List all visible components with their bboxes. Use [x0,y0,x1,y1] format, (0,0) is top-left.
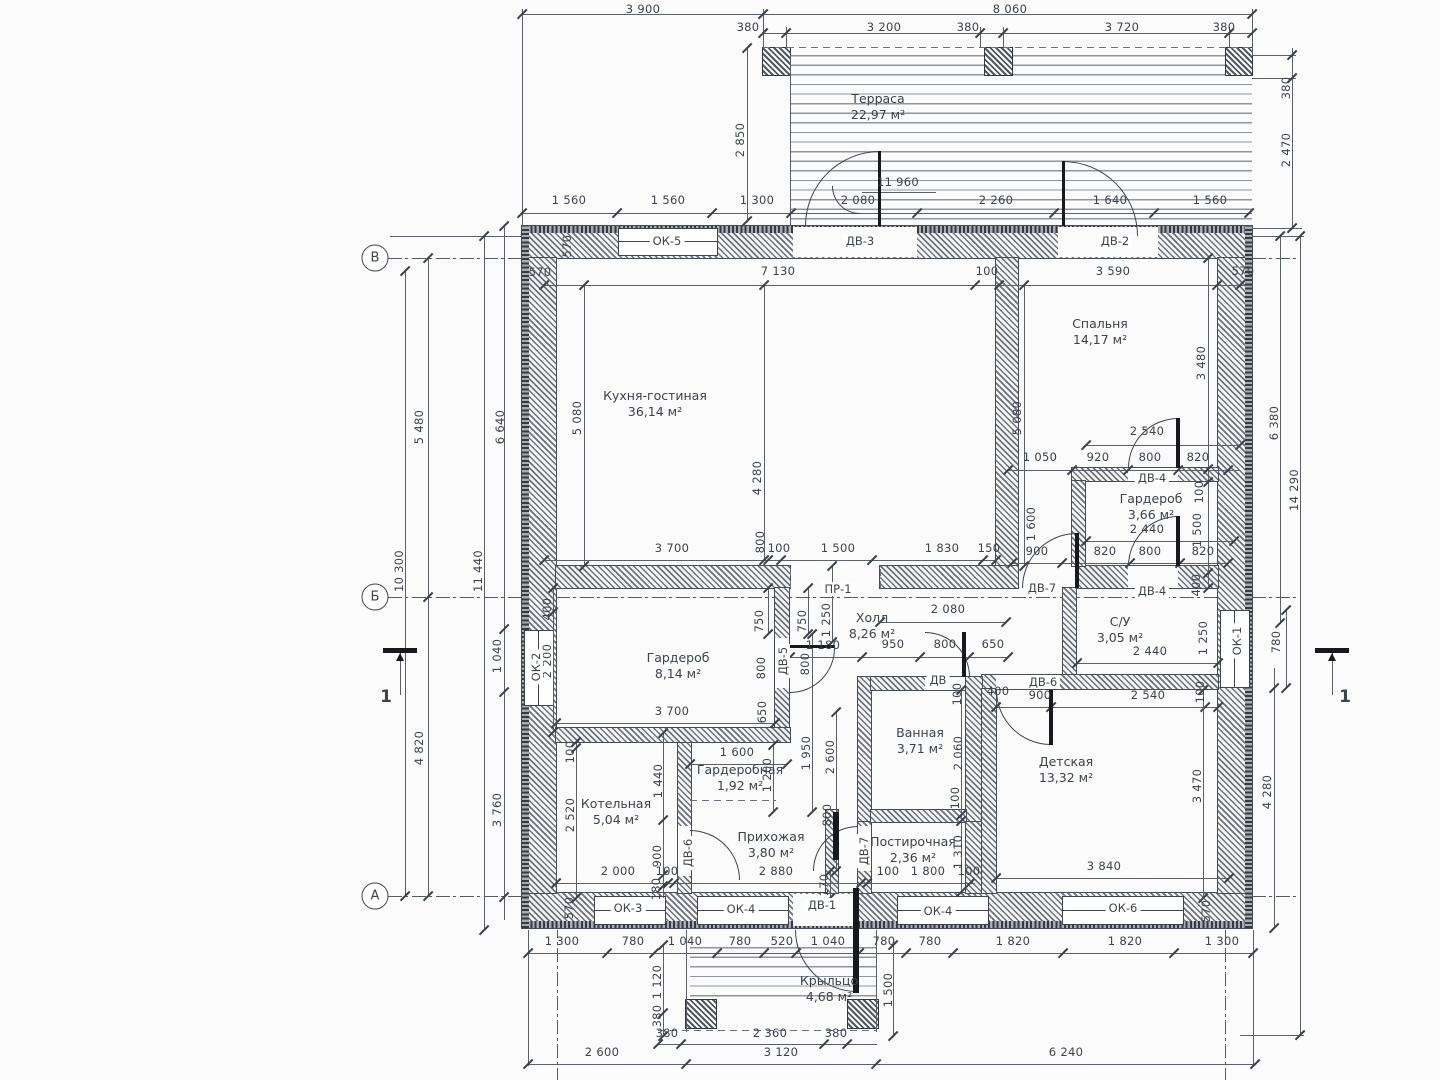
dimension-text: 3 480 [1194,346,1208,380]
dimension-text: 800 [1139,450,1162,464]
dimension-text: 400 [987,684,1010,698]
dimension-text: 380 [650,1005,664,1028]
opening-mark: ДВ-6 [681,836,695,870]
dimension-text: 100 [950,683,964,706]
dimension-text: 800 [1139,544,1162,558]
dimension-text: 800 [753,531,767,554]
dimension-text: 3 760 [490,793,504,827]
room-area: 22,97 м² [851,107,905,123]
room-name: Детская [1039,754,1093,770]
wall [556,728,790,742]
wall [880,566,1018,588]
door-leaf [962,632,966,677]
wall [556,566,790,588]
dimension-text: 400 [540,598,554,621]
dimension-text: 3 700 [655,704,689,718]
wall [858,677,871,822]
opening-mark: ДВ-6 [1026,675,1060,689]
dimension-text: 1 830 [925,541,959,555]
dimension-line [528,1064,1255,1065]
dimension-line [764,285,765,560]
section-arrow [396,653,404,661]
dimension-text: 3 590 [1096,264,1130,278]
dimension-text: 1 440 [651,764,665,798]
dimension-text: 6 240 [1049,1045,1083,1059]
dimension-text: 180 [649,878,663,901]
room-label: Детская13,32 м² [1039,754,1093,787]
dimension-text: 100 [948,787,962,810]
room-area: 3,80 м² [738,845,805,861]
dimension-text: 3 120 [764,1045,798,1059]
room-area: 3,05 м² [1097,630,1143,646]
dashed-line [763,47,1252,48]
door-swing-arc [790,648,835,693]
dimension-text: 3 900 [626,2,660,16]
section-number: 1 [380,687,392,707]
dimension-text: 1 640 [1093,193,1127,207]
dimension-text: 780 [873,934,896,948]
dimension-text: 1 560 [552,193,586,207]
opening-mark: ДВ-7 [1025,581,1059,595]
dimension-text: 100 [768,541,791,555]
dimension-line [556,883,975,884]
dimension-text: 900 [1026,544,1049,558]
opening-mark: ДВ-4 [1135,584,1169,598]
dimension-text: 1 300 [545,934,579,948]
dimension-text: 2 540 [1131,688,1165,702]
wall [1063,588,1076,675]
opening-mark: ДВ-2 [1098,234,1132,248]
room-name: Ванная [896,725,944,741]
room-label: Спальня14,17 м² [1072,316,1128,349]
dimension-text: 4 280 [750,461,764,495]
insulation-band [522,226,529,928]
dashed-line [880,566,881,588]
door-swing-arc [1022,533,1077,588]
dimension-text: 3 470 [1190,769,1204,803]
extension-line [1252,228,1302,229]
room-label: Гардероб8,14 м² [647,650,710,683]
dimension-line [1077,663,1218,664]
dimension-text: 100 [1193,681,1207,704]
extension-line [790,55,791,226]
dimension-text: 1 500 [1190,513,1204,547]
room-area: 8,14 м² [647,666,710,682]
dimension-text: 8 060 [993,2,1027,16]
room-label: Крыльцо4,68 м² [800,973,858,1006]
dimension-text: 1 950 [799,736,813,770]
room-name: Постирочная [870,834,956,850]
dimension-text: 780 [729,934,752,948]
dashed-line [690,800,776,801]
room-area: 4,68 м² [800,989,858,1005]
dimension-text: 5 080 [1010,401,1024,435]
dimension-text: 5 480 [412,410,426,444]
dimension-text: 1 040 [490,639,504,673]
dimension-text: 2 880 [759,864,793,878]
dimension-text: 10 300 [392,550,406,592]
door-leaf [1075,533,1079,588]
room-label: С/У3,05 м² [1097,614,1143,647]
axis-bubble: Б [362,584,389,611]
dimension-text: 520 [771,934,794,948]
room-area: 8,26 м² [849,626,895,642]
dimension-text: 7 130 [761,264,795,278]
dimension-text: 1 300 [740,193,774,207]
dimension-text: 150 [978,541,1001,555]
dimension-text: 100 [976,264,999,278]
dimension-text: 800 [934,637,957,651]
extension-line [390,236,522,237]
dimension-text: 820 [1094,544,1117,558]
opening-mark: ДВ-1 [805,898,839,912]
dimension-line [522,213,1252,214]
door-leaf [1062,161,1065,226]
opening-mark: ОК-3 [611,901,646,915]
room-area: 5,04 м² [581,812,651,828]
dimension-text: 820 [1192,544,1215,558]
dimension-text: 2 000 [601,864,635,878]
room-name: С/У [1097,614,1143,630]
dimension-text: 14 290 [1287,469,1301,511]
dimension-text: 650 [982,637,1005,651]
dimension-line [528,953,1253,954]
dimension-text: 1 560 [651,193,685,207]
dimension-text: 2 850 [733,123,747,157]
dimension-text: 1 180 [806,638,840,652]
dimension-text: 11 960 [877,175,919,189]
wall [966,677,982,822]
dimension-text: 6 640 [493,410,507,444]
floor-plan-drawing: 3 9008 0603803 2003803 7203802 8503802 4… [0,0,1440,1080]
dimension-text: 100 [656,864,679,878]
dimension-line [1286,610,1287,688]
dimension-text: 1 600 [1024,507,1038,541]
door-swing-arc [690,830,740,880]
dimension-text: 2 360 [753,1026,787,1040]
dimension-text: 650 [755,701,769,724]
room-area: 36,14 м² [603,404,707,420]
opening-mark: ОК-6 [1106,901,1141,915]
dimension-line [556,723,775,724]
dimension-text: 380 [656,1026,679,1040]
room-label: Гардеробная1,92 м² [697,762,783,795]
dimension-text: 2 540 [1130,424,1164,438]
column-post [686,1000,716,1028]
dimension-text: 750 [795,610,809,633]
dimension-text: 1 300 [1205,934,1239,948]
room-area: 14,17 м² [1072,332,1128,348]
section-arrow [1328,653,1336,661]
dimension-text: 2 600 [585,1045,619,1059]
room-label: Котельная5,04 м² [581,796,651,829]
wall [871,810,966,822]
dimension-text: 100 [563,741,577,764]
dimension-text: 920 [1087,450,1110,464]
dimension-text: 2 520 [563,798,577,832]
opening-mark: ОК-4 [921,904,956,918]
dimension-text: 570 [562,897,576,920]
room-area: 3,71 м² [896,741,944,757]
opening-mark: ОК-1 [1230,624,1244,659]
room-name: Спальня [1072,316,1128,332]
dimension-line [1208,258,1209,588]
room-area: 2,36 м² [870,850,956,866]
dimension-text: 1 050 [1023,450,1057,464]
dimension-line [428,258,429,896]
dimension-text: 800 [798,653,812,676]
dimension-text: 400 [1189,574,1203,597]
dimension-line [584,285,585,566]
dimension-text: 820 [1187,450,1210,464]
dimension-text: 1 820 [996,934,1030,948]
dimension-line [763,33,1252,34]
dimension-text: 1 500 [821,541,855,555]
dimension-line [1274,668,1275,928]
dimension-text: 2 060 [951,736,965,770]
axis-bubble: А [362,883,389,910]
extension-line [1240,1035,1304,1036]
room-name: Кухня-гостиная [603,388,707,404]
dimension-text: 380 [825,1026,848,1040]
dimension-text: 3 200 [867,20,901,34]
room-name: Прихожая [738,829,805,845]
door-leaf [1176,418,1180,468]
dimension-text: 1 600 [720,745,754,759]
room-name: Холл [849,610,895,626]
dimension-text: 570 [560,235,574,258]
section-number: 1 [1339,687,1351,707]
opening-mark: ДВ-5 [776,644,790,678]
dimension-text: 2 080 [931,602,965,616]
dimension-line [504,226,505,920]
dimension-text: 2 470 [1279,133,1293,167]
room-label: Холл8,26 м² [849,610,895,643]
dimension-line [880,622,1006,623]
dimension-text: 1 040 [811,934,845,948]
room-label: Ванная3,71 м² [896,725,944,758]
dimension-text: 380 [1213,20,1236,34]
dimension-text: 100 [958,864,981,878]
dimension-text: 570 [1199,900,1213,923]
axis-bubble: В [362,245,389,272]
dimension-text: 570 [529,265,552,279]
opening-mark: ОК-4 [724,902,759,916]
room-label: Гардероб3,66 м² [1120,491,1183,524]
dimension-text: 3 840 [1087,859,1121,873]
dimension-text: 1 500 [881,973,895,1007]
dashed-line [790,566,791,588]
dimension-text: 6 380 [1267,406,1281,440]
room-name: Гардероб [1120,491,1183,507]
dimension-text: 1 820 [1108,934,1142,948]
opening-mark: ПР-1 [821,582,854,596]
dimension-text: 1 250 [819,603,833,637]
insulation-band [1245,226,1252,928]
dimension-text: 3 700 [655,541,689,555]
dimension-text: 2 260 [979,193,1013,207]
opening-mark: ДВ-3 [843,234,877,248]
door-leaf [1176,516,1180,566]
room-area: 3,66 м² [1120,507,1183,523]
dimension-line [544,560,996,561]
dimension-text: 380 [737,20,760,34]
dimension-text: 380 [957,20,980,34]
dimension-text: 11 440 [471,550,485,592]
room-name: Гардероб [647,650,710,666]
room-area: 13,32 м² [1039,770,1093,786]
dimension-text: 170 [817,874,831,897]
dimension-text: 3 720 [1105,20,1139,34]
opening-mark: ОК-2 [529,650,543,685]
opening-mark: ОК-5 [650,234,685,248]
dimension-line [996,878,1229,879]
room-label: Терраса22,97 м² [851,91,905,124]
dimension-text: 1 250 [1196,621,1210,655]
wall [982,689,996,893]
room-name: Терраса [851,91,905,107]
dimension-text: 2 600 [823,740,837,774]
dimension-line [768,588,769,634]
dimension-text: 1 120 [650,965,664,999]
dimension-text: 750 [752,610,766,633]
room-name: Крыльцо [800,973,858,989]
dimension-text: 800 [820,804,834,827]
room-area: 1,92 м² [697,778,783,794]
room-name: Котельная [581,796,651,812]
dimension-text: 570 [1232,264,1255,278]
dimension-text: 2 080 [841,193,875,207]
dimension-line [1300,236,1301,1035]
room-label: Кухня-гостиная36,14 м² [603,388,707,421]
dimension-text: 780 [622,934,645,948]
dimension-text: 4 820 [412,731,426,765]
column-post [763,48,790,75]
dimension-text: 380 [1279,77,1293,100]
opening-mark: ДВ-7 [857,834,871,868]
dimension-text: 1 040 [668,934,702,948]
dimension-text: 4 280 [1260,775,1274,809]
opening-mark: ДВ [927,673,950,687]
room-name: Гардеробная [697,762,783,778]
dimension-text: 1 560 [1193,193,1227,207]
dimension-text: 800 [754,657,768,680]
column-post [1226,48,1252,75]
room-label: Прихожая3,80 м² [738,829,805,862]
extension-line [522,9,523,226]
opening-mark: ДВ-4 [1135,471,1169,485]
room-label: Постирочная2,36 м² [870,834,956,867]
dimension-text: 780 [1269,631,1283,654]
dimension-text: 5 080 [570,401,584,435]
dimension-text: 100 [1192,481,1206,504]
column-post [985,48,1012,75]
dimension-text: 2 440 [1130,522,1164,536]
dimension-text: 780 [919,934,942,948]
dimension-text: 900 [1029,688,1052,702]
dimension-line [544,285,1252,286]
